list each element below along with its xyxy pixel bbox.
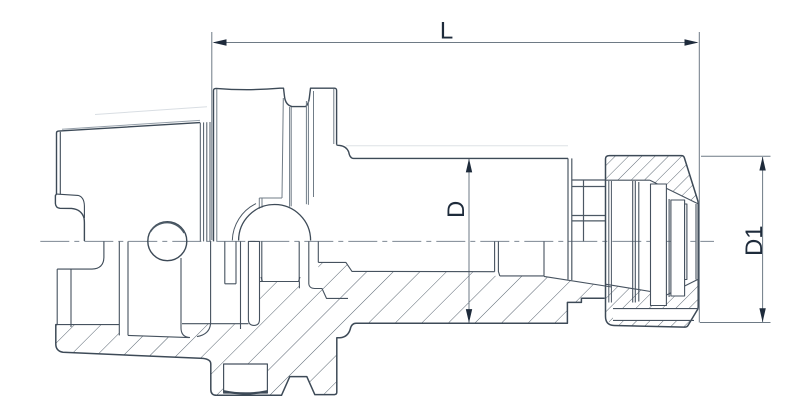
svg-text:L: L bbox=[440, 18, 453, 45]
svg-text:D1: D1 bbox=[741, 225, 768, 256]
svg-text:D: D bbox=[443, 201, 470, 218]
